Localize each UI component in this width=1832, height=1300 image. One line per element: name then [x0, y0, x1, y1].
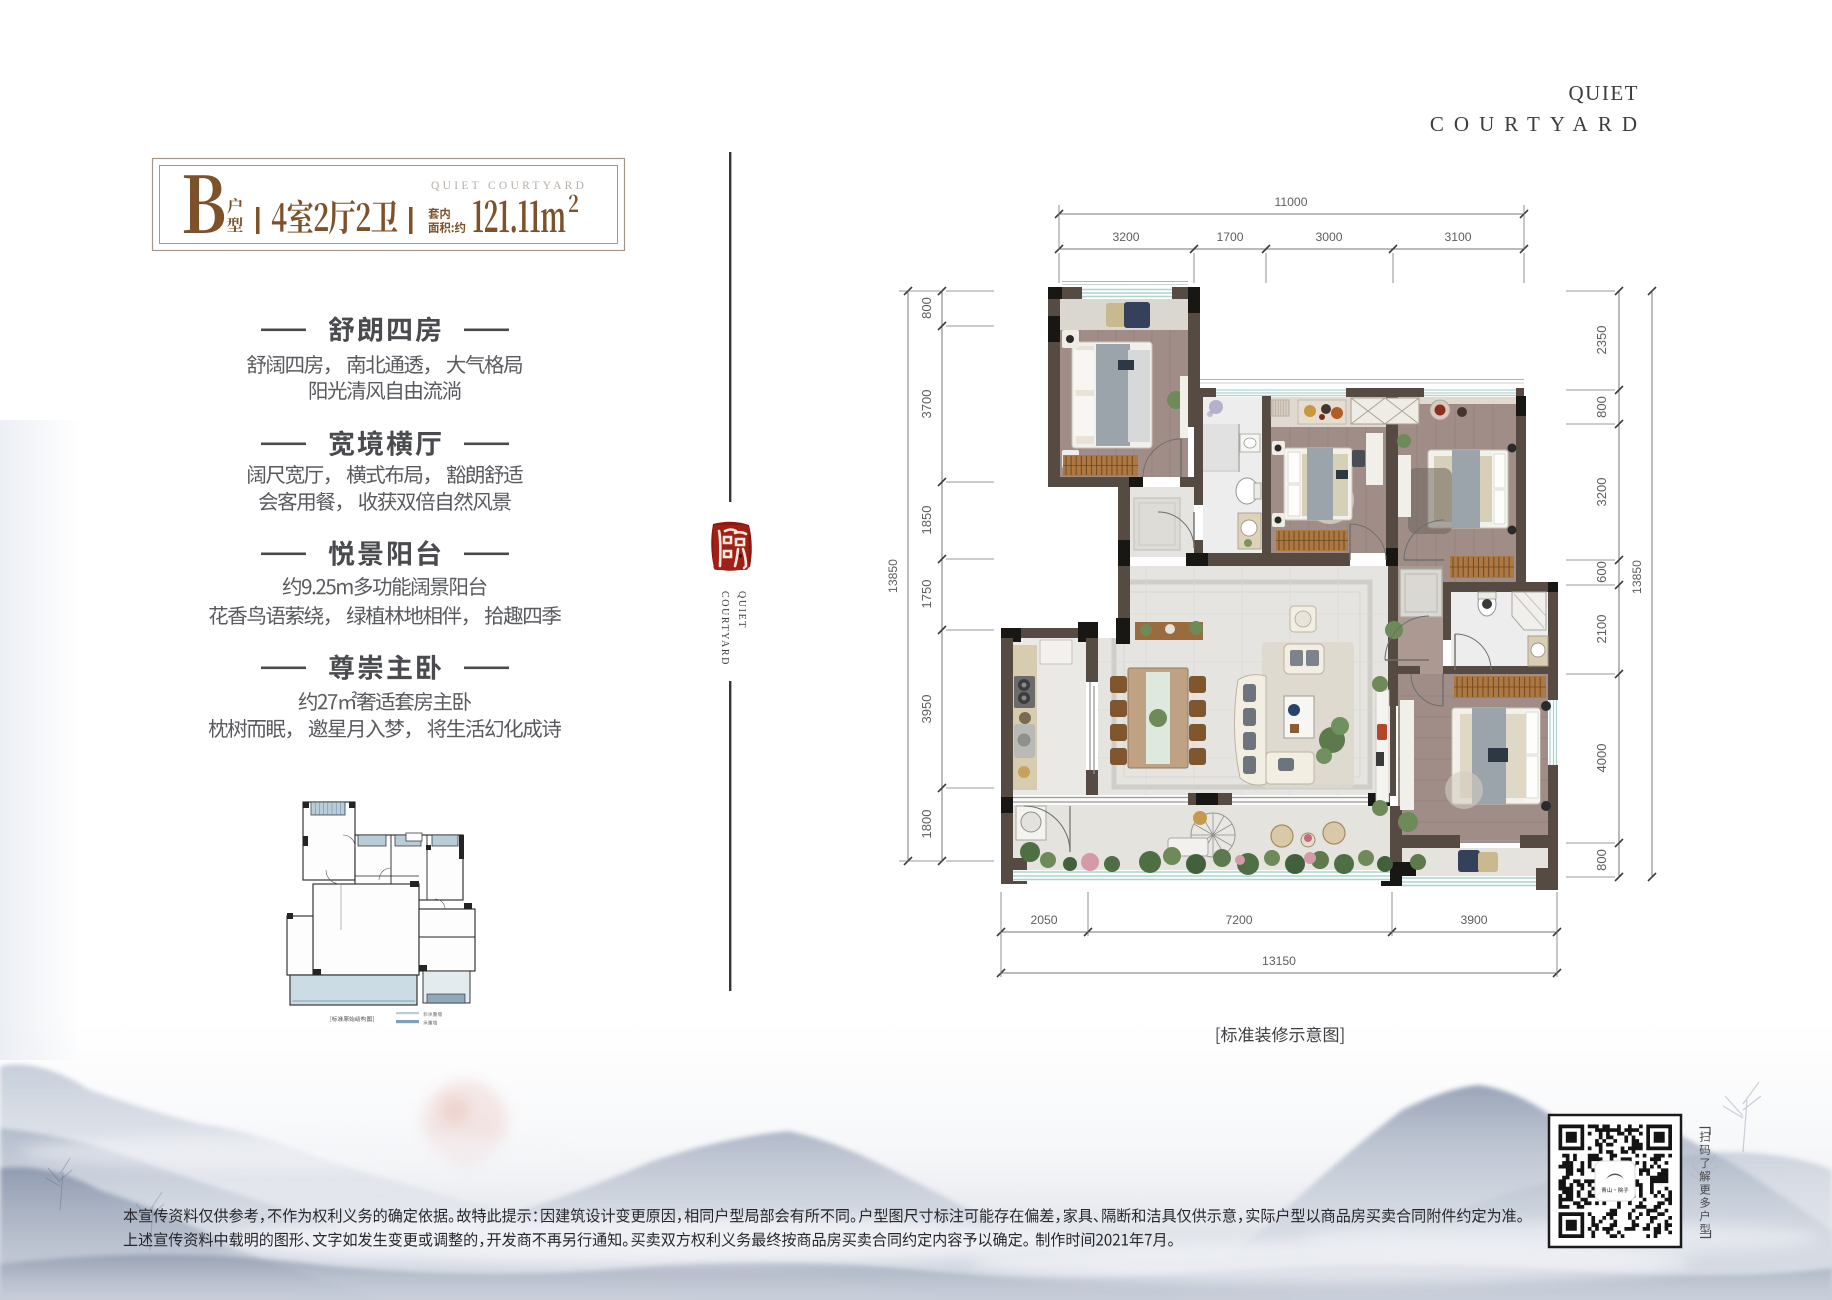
svg-text:800: 800	[1594, 849, 1609, 871]
svg-text:600: 600	[1594, 561, 1609, 583]
svg-text:1800: 1800	[919, 810, 934, 839]
svg-text:COURTYARD: COURTYARD	[1430, 112, 1647, 136]
svg-text:3000: 3000	[1315, 230, 1342, 244]
svg-text:1700: 1700	[1216, 230, 1243, 244]
svg-text:11000: 11000	[1275, 195, 1308, 209]
svg-text:13850: 13850	[886, 559, 900, 593]
svg-text:COURTYARD: COURTYARD	[719, 591, 730, 666]
svg-text:QUIET: QUIET	[736, 591, 747, 629]
svg-text:800: 800	[1594, 396, 1609, 418]
svg-text:3100: 3100	[1444, 230, 1471, 244]
svg-text:QUIET COURTYARD: QUIET COURTYARD	[431, 180, 587, 192]
svg-text:7200: 7200	[1225, 913, 1252, 927]
svg-text:800: 800	[919, 297, 934, 319]
svg-text:13850: 13850	[1630, 560, 1644, 594]
svg-text:3700: 3700	[919, 390, 934, 419]
svg-text:2350: 2350	[1594, 326, 1609, 355]
svg-text:2050: 2050	[1030, 913, 1057, 927]
svg-text:1850: 1850	[919, 506, 934, 535]
svg-text:QUIET: QUIET	[1569, 81, 1639, 105]
svg-text:1750: 1750	[919, 580, 934, 609]
svg-text:4000: 4000	[1594, 744, 1609, 773]
svg-text:3950: 3950	[919, 695, 934, 724]
svg-text:3200: 3200	[1594, 478, 1609, 507]
svg-text:13150: 13150	[1262, 954, 1296, 968]
svg-text:3900: 3900	[1460, 913, 1487, 927]
svg-text:2100: 2100	[1594, 615, 1609, 644]
svg-text:3200: 3200	[1112, 230, 1139, 244]
